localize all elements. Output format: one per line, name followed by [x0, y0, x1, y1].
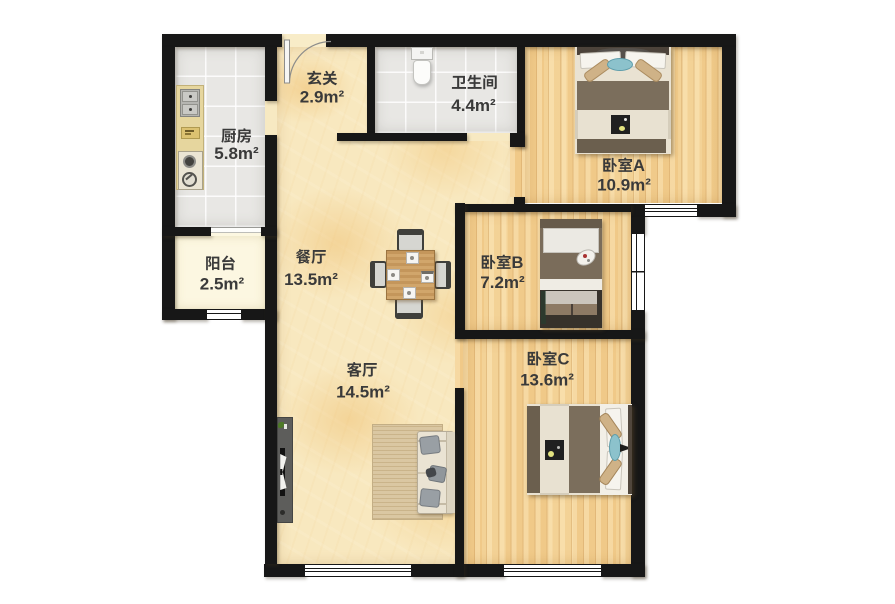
svg-text:A: A — [633, 157, 645, 175]
svg-text:2.9m²: 2.9m² — [300, 88, 345, 107]
svg-text:4.4m²: 4.4m² — [451, 96, 496, 115]
svg-text:2.5m²: 2.5m² — [200, 275, 245, 294]
svg-text:13.6m²: 13.6m² — [520, 371, 574, 390]
svg-text:C: C — [558, 351, 570, 369]
svg-text:10.9m²: 10.9m² — [597, 176, 651, 195]
svg-text:7.2m²: 7.2m² — [480, 273, 525, 292]
svg-text:14.5m²: 14.5m² — [336, 383, 390, 402]
svg-text:5.8m²: 5.8m² — [214, 144, 259, 163]
svg-text:B: B — [512, 254, 524, 272]
svg-text:13.5m²: 13.5m² — [284, 270, 338, 289]
